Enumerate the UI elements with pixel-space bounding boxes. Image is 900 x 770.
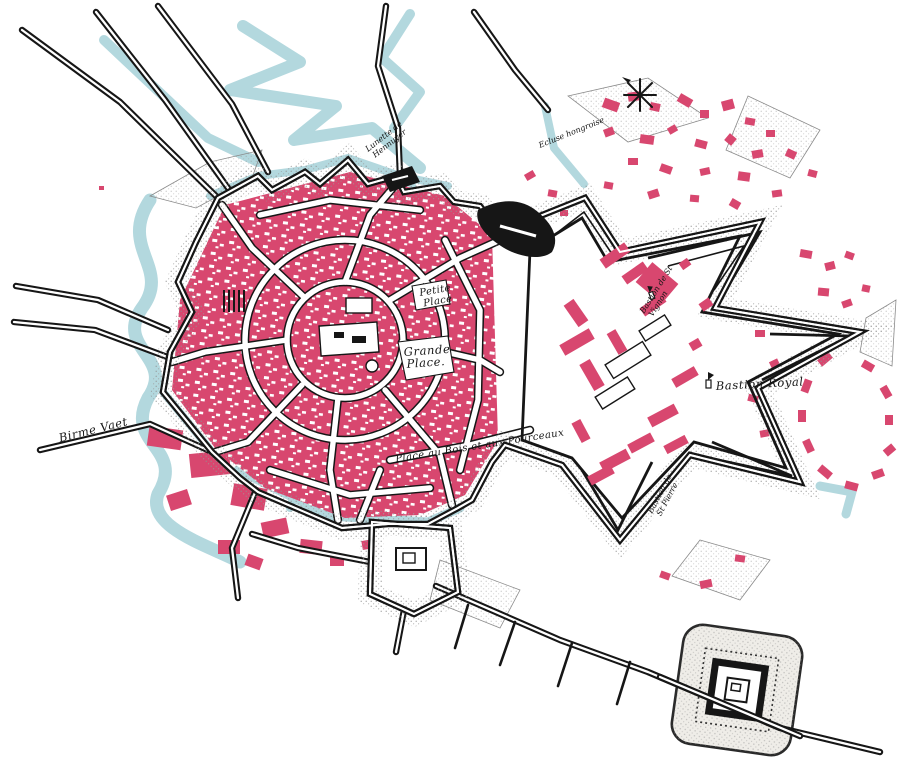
building-block — [694, 139, 708, 150]
label-bastion-royal: Bastion Royal — [714, 374, 804, 393]
hornwork-detail — [396, 548, 426, 570]
building-block — [841, 299, 853, 309]
fort-keep — [725, 678, 750, 703]
building-block — [671, 366, 699, 388]
flag-marker-icon — [706, 372, 714, 388]
building-block — [883, 443, 897, 456]
building-detail — [366, 360, 378, 372]
building-block — [524, 170, 536, 181]
building-block — [880, 385, 893, 399]
building-block — [587, 464, 615, 485]
building-block — [690, 195, 700, 203]
river-northwest-branch — [104, 40, 258, 162]
building-block — [817, 464, 833, 479]
building-block — [807, 169, 818, 178]
building-block — [244, 554, 263, 571]
building-block — [755, 330, 765, 337]
building-block — [871, 468, 885, 480]
building-block — [547, 189, 557, 197]
building-block — [659, 571, 671, 581]
east-water-mark — [820, 486, 852, 514]
central-annex — [346, 298, 372, 313]
building-block — [659, 163, 673, 175]
citadel-barracks-white — [595, 315, 671, 409]
building-block — [729, 198, 742, 210]
building-block — [559, 328, 594, 355]
building-block — [564, 299, 589, 327]
building-detail — [334, 332, 344, 338]
building-block — [627, 432, 655, 453]
building-detail — [352, 336, 366, 343]
building-block — [688, 338, 702, 351]
building-block — [798, 410, 806, 422]
river-top-channel — [382, 14, 420, 128]
building-block — [99, 186, 104, 190]
building-block — [579, 359, 604, 391]
map-canvas: Petite Place Grande Place. Bastion Royal… — [0, 0, 900, 770]
hornwork-building — [396, 548, 426, 570]
building-block — [861, 360, 875, 373]
building-block — [166, 489, 192, 511]
historic-fortification-map: Petite Place Grande Place. Bastion Royal… — [0, 0, 900, 770]
building-block — [737, 171, 750, 182]
road-spur — [558, 643, 572, 686]
building-block — [700, 110, 709, 118]
building-block — [721, 99, 735, 112]
building-block — [571, 419, 590, 443]
building-block — [861, 284, 870, 293]
building-block — [844, 251, 855, 261]
barracks-building — [605, 342, 651, 379]
central-building — [319, 322, 379, 356]
building-block — [639, 134, 654, 145]
building-block — [885, 415, 893, 425]
building-block — [772, 189, 783, 197]
building-block — [628, 158, 638, 165]
road-spur — [617, 662, 630, 704]
glacis-wedge — [672, 540, 770, 600]
building-block — [607, 329, 628, 355]
path-segment — [14, 322, 170, 358]
building-block — [603, 181, 613, 189]
building-block — [824, 261, 836, 271]
building-block — [766, 130, 775, 137]
building-block — [699, 167, 710, 176]
building-block — [799, 249, 812, 259]
building-block — [802, 438, 815, 453]
barracks-building — [639, 315, 671, 341]
building-block — [735, 554, 746, 562]
glacis-wedge — [568, 78, 708, 142]
road-spur — [500, 622, 515, 665]
building-block — [647, 404, 679, 428]
building-block — [818, 288, 830, 297]
building-block — [647, 188, 660, 199]
